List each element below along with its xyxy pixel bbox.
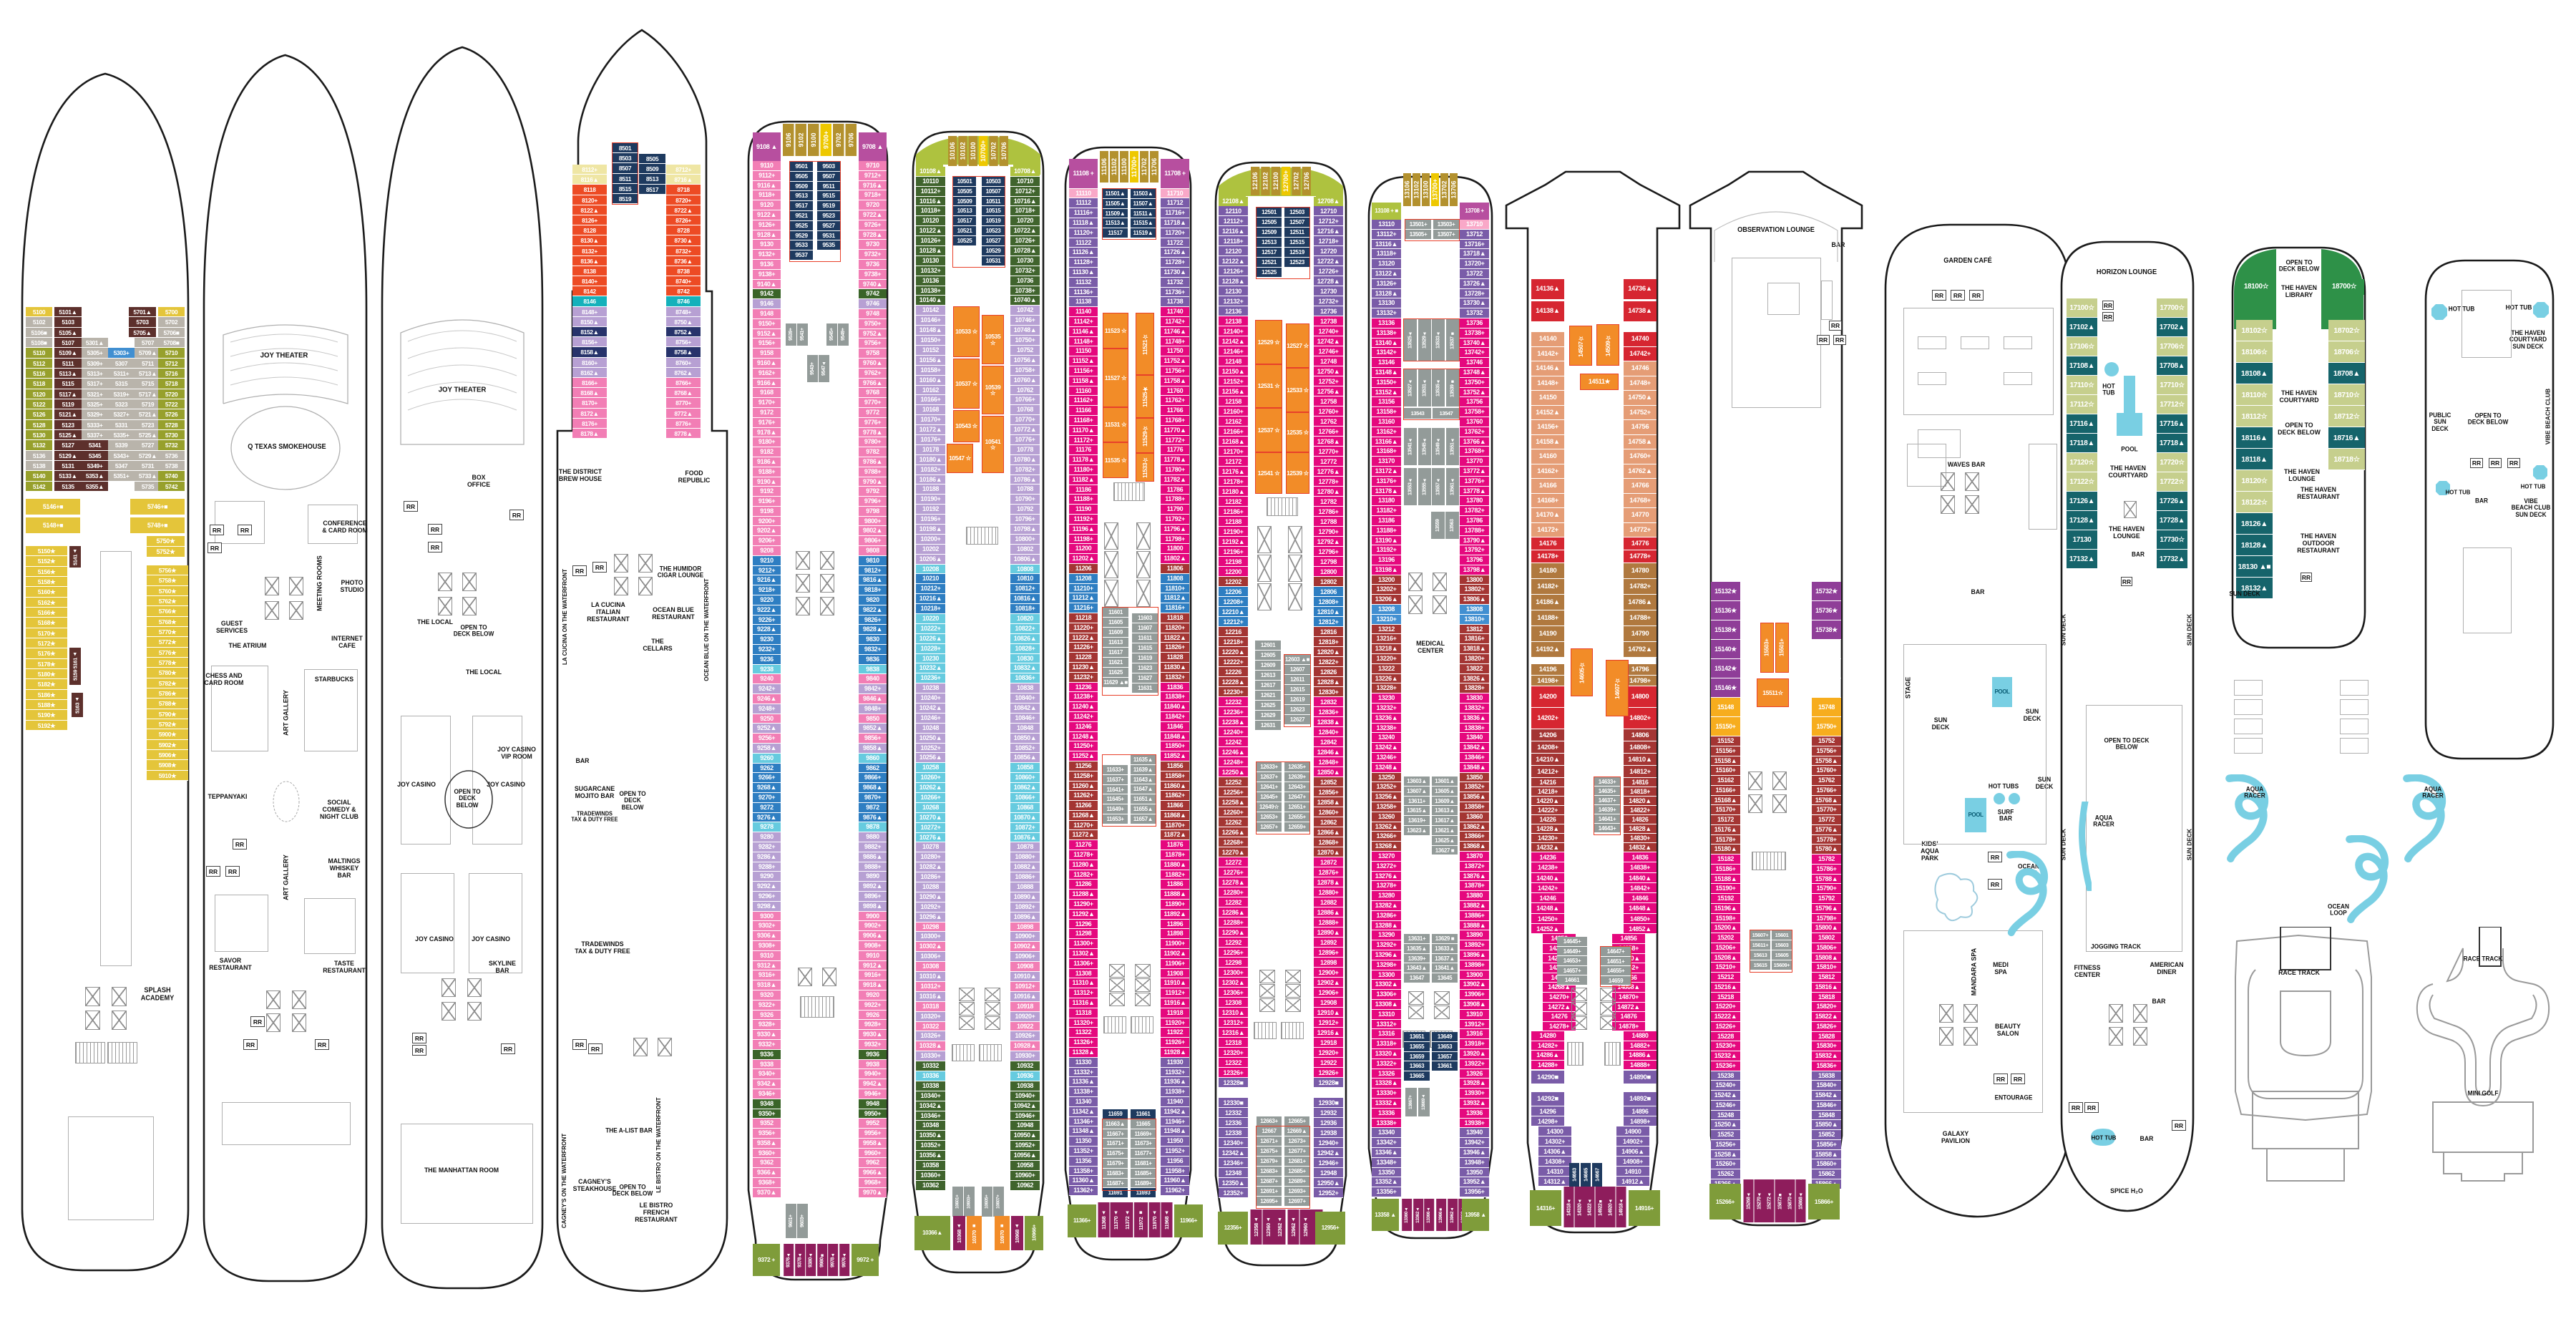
svg-text:9106: 9106	[785, 132, 792, 147]
svg-text:11700+: 11700+	[1131, 156, 1138, 177]
svg-text:9700+: 9700+	[822, 131, 829, 149]
svg-text:12106: 12106	[1252, 172, 1259, 190]
svg-text:10702: 10702	[990, 142, 997, 160]
svg-text:11100: 11100	[1121, 158, 1128, 175]
svg-text:12100: 12100	[1272, 172, 1279, 190]
svg-text:11702: 11702	[1141, 158, 1148, 176]
svg-text:10706: 10706	[1000, 142, 1008, 160]
svg-text:11706: 11706	[1151, 158, 1158, 176]
svg-text:12102: 12102	[1262, 172, 1269, 190]
svg-text:13102: 13102	[1413, 180, 1420, 198]
svg-text:12706: 12706	[1303, 172, 1310, 190]
svg-text:13106: 13106	[1404, 180, 1411, 198]
svg-text:9102: 9102	[797, 132, 804, 147]
svg-text:9706: 9706	[847, 132, 854, 147]
svg-text:11102: 11102	[1111, 158, 1118, 175]
svg-text:13702: 13702	[1441, 180, 1448, 198]
svg-text:10100: 10100	[970, 142, 977, 160]
svg-text:10102: 10102	[960, 142, 967, 160]
svg-text:13700+: 13700+	[1432, 179, 1439, 200]
svg-text:9702: 9702	[835, 132, 842, 147]
svg-text:9100: 9100	[810, 132, 817, 147]
svg-text:10700+: 10700+	[980, 140, 987, 162]
svg-text:10106: 10106	[949, 142, 956, 160]
svg-text:13100: 13100	[1423, 180, 1430, 198]
svg-text:13706: 13706	[1450, 180, 1458, 198]
svg-text:11106: 11106	[1101, 158, 1108, 175]
svg-text:12702: 12702	[1293, 172, 1300, 190]
svg-text:12700+: 12700+	[1282, 170, 1289, 192]
